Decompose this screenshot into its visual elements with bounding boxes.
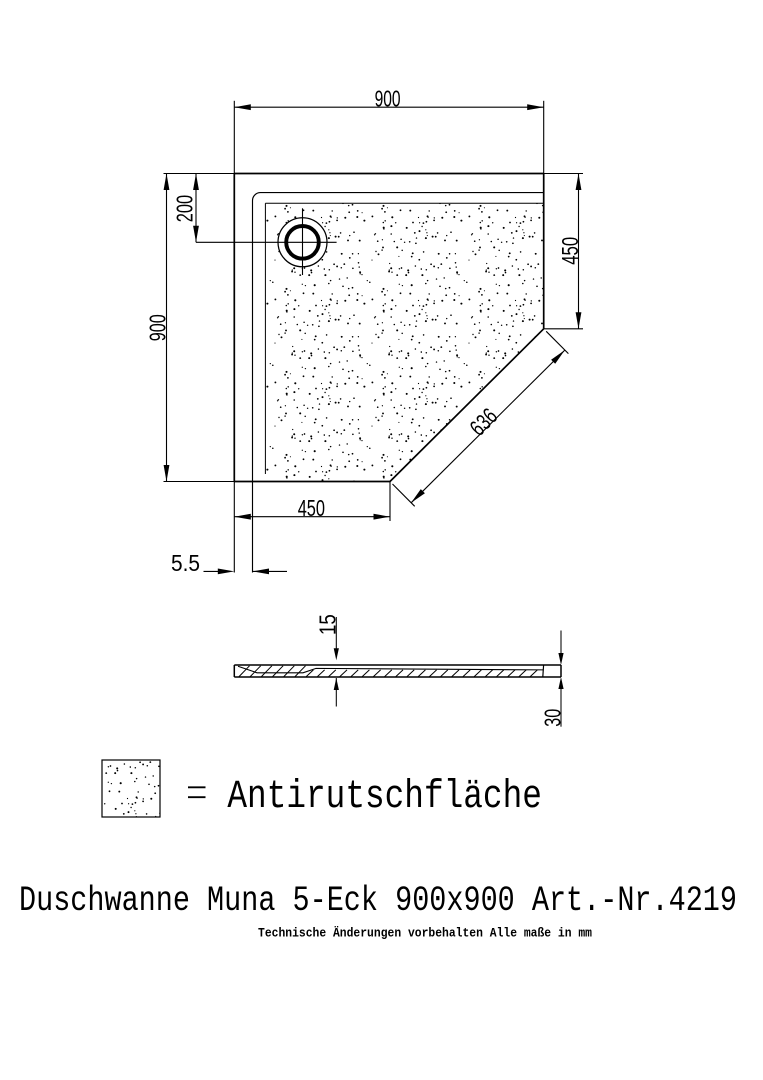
svg-text:15: 15 <box>314 614 340 635</box>
svg-text:900: 900 <box>145 314 171 341</box>
svg-text:Technische Änderungen vorbehal: Technische Änderungen vorbehalten Alle m… <box>258 926 592 941</box>
svg-text:450: 450 <box>557 237 583 265</box>
svg-text:450: 450 <box>298 495 325 521</box>
svg-text:Duschwanne Muna 5-Eck 900x900: Duschwanne Muna 5-Eck 900x900 Art.-Nr.42… <box>19 880 737 921</box>
svg-text:Antirutschfläche: Antirutschfläche <box>227 774 542 819</box>
svg-text:30: 30 <box>539 709 565 727</box>
svg-text:900: 900 <box>375 85 401 111</box>
svg-text:200: 200 <box>171 195 197 222</box>
svg-text:5.5: 5.5 <box>171 550 200 576</box>
